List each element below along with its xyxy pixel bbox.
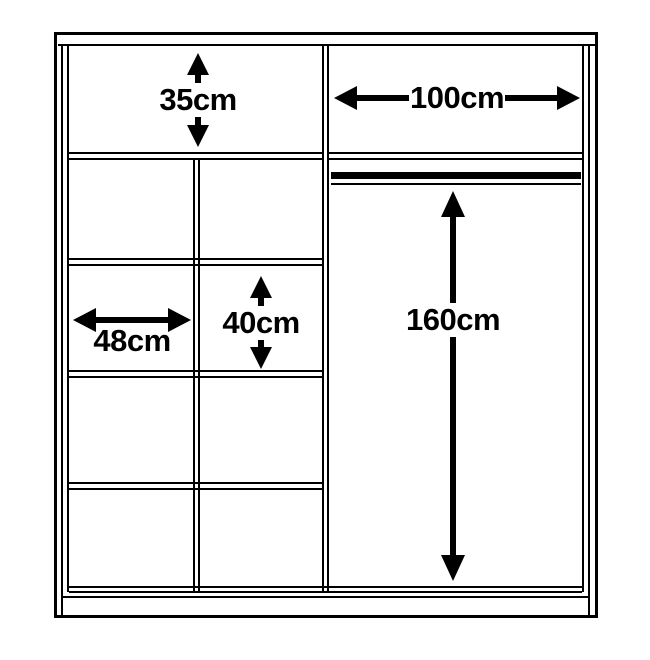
arrow-down-icon xyxy=(250,347,272,369)
arrow-shaft xyxy=(357,95,409,101)
dimension-right-section-width: 100cm xyxy=(334,81,580,115)
shelf-line xyxy=(69,376,322,378)
plinth-top-line xyxy=(63,596,590,598)
shelf-line xyxy=(69,370,322,372)
arrow-up-icon xyxy=(250,276,272,298)
arrow-right-icon xyxy=(168,308,191,332)
dimension-label-40cm: 40cm xyxy=(222,306,299,340)
arrow-shaft xyxy=(450,217,456,303)
arrow-up-icon xyxy=(441,191,465,217)
shelf-line xyxy=(69,158,322,160)
arrow-shaft xyxy=(505,95,557,101)
dimension-label-160cm: 160cm xyxy=(406,303,500,337)
arrow-down-icon xyxy=(187,125,209,147)
shelf-line xyxy=(69,258,322,260)
arrow-right-icon xyxy=(557,86,580,110)
shelf-line xyxy=(329,152,582,154)
bottom-shelf-line xyxy=(69,591,582,593)
shelf-line xyxy=(69,488,322,490)
center-partition-line xyxy=(322,46,324,593)
shelf-line xyxy=(69,482,322,484)
arrow-up-icon xyxy=(187,53,209,75)
arrow-shaft xyxy=(450,337,456,555)
arrow-down-icon xyxy=(441,555,465,581)
dimension-label-35cm: 35cm xyxy=(159,83,236,117)
arrow-shaft xyxy=(195,117,201,125)
shelf-line xyxy=(69,264,322,266)
bottom-shelf-line xyxy=(69,586,582,588)
dimension-label-100cm: 100cm xyxy=(410,81,504,115)
right-side-panel-line xyxy=(588,44,590,616)
left-interior-edge-line xyxy=(67,46,69,592)
shelf-line xyxy=(329,158,582,160)
arrow-left-icon xyxy=(334,86,357,110)
dimension-hanging-space-height: 160cm xyxy=(393,191,513,581)
left-side-panel-line xyxy=(61,44,63,616)
dimension-top-shelf-height: 35cm xyxy=(138,53,258,147)
dimension-left-column-width: 48cm xyxy=(73,308,191,358)
hanging-rail xyxy=(331,172,581,179)
right-interior-edge-line xyxy=(582,46,584,592)
center-partition-line xyxy=(327,46,329,593)
wardrobe-dimension-diagram: 35cm 100cm 48cm 40cm 160cm xyxy=(0,0,650,660)
hanging-rail-underline xyxy=(331,183,581,185)
shelf-line xyxy=(69,152,322,154)
arrow-shaft xyxy=(258,340,264,348)
dimension-middle-shelf-height: 40cm xyxy=(201,276,321,369)
dimension-label-48cm: 48cm xyxy=(93,324,170,358)
